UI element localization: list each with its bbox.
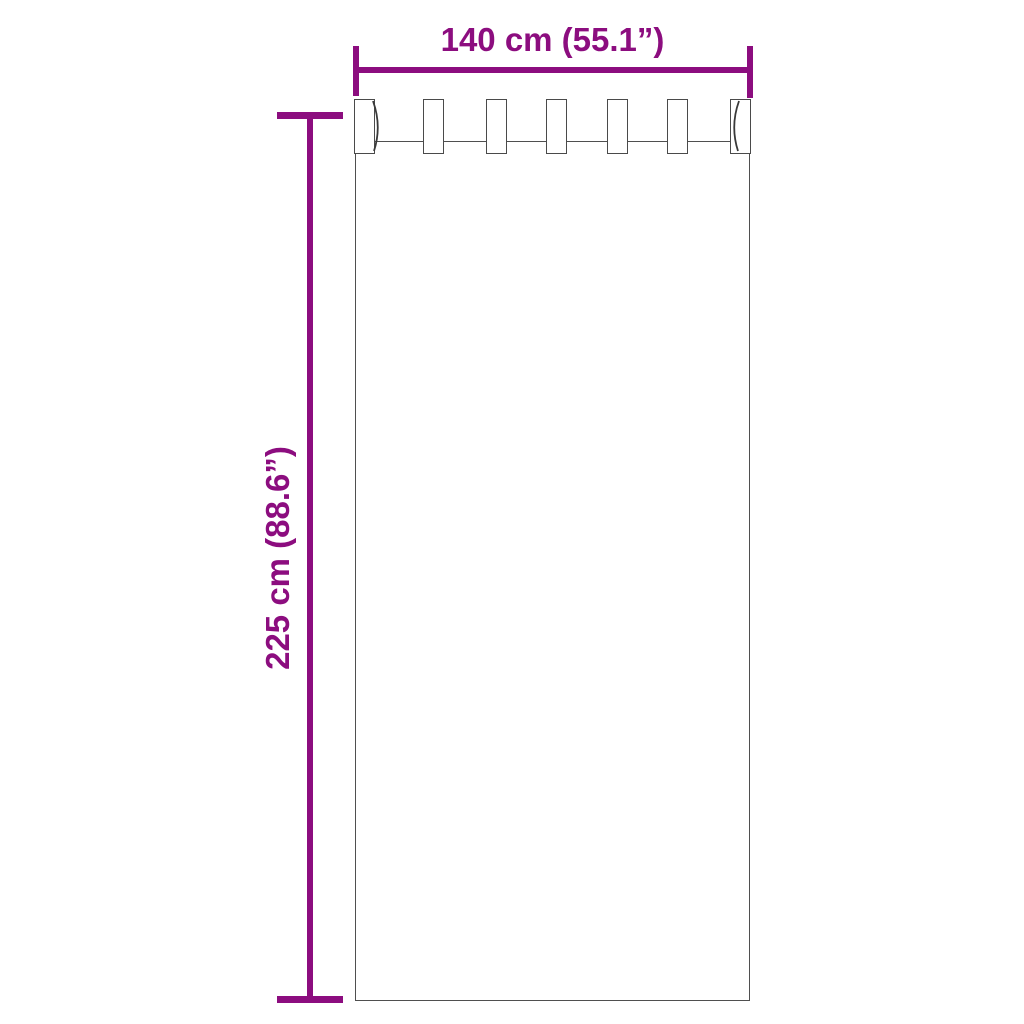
curtain-tab-2 [423, 99, 444, 154]
curtain-tab-3 [486, 99, 507, 154]
curtain-tab-5 [607, 99, 628, 154]
height-dimension-bottom-cap [277, 996, 343, 1003]
fabric-fold-line-right [727, 100, 741, 154]
curtain-dimension-diagram: 140 cm (55.1”) 225 cm (88.6”) [0, 0, 1024, 1024]
height-dimension-top-cap [277, 112, 343, 119]
width-dimension-left-cap [353, 46, 359, 96]
height-dimension-line [307, 113, 313, 1003]
width-dimension-line [355, 67, 750, 73]
curtain-tab-6 [667, 99, 688, 154]
width-dimension-label: 140 cm (55.1”) [355, 20, 750, 60]
height-dimension-label: 225 cm (88.6”) [258, 408, 298, 708]
curtain-tab-4 [546, 99, 567, 154]
curtain-panel [355, 141, 750, 1001]
width-dimension-right-cap [747, 46, 753, 98]
fabric-fold-line-left [371, 100, 385, 154]
